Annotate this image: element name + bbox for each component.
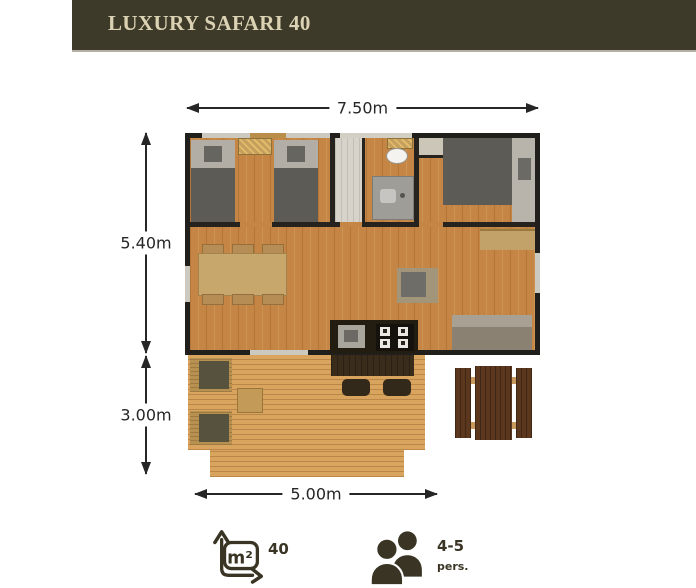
single-bed bbox=[274, 140, 318, 222]
burner-icon bbox=[398, 327, 408, 336]
window bbox=[286, 133, 330, 138]
page: LUXURY SAFARI 40 7.50m 5.40m 3.00m 5.00m bbox=[0, 0, 696, 588]
dimension-left-lower: 3.00m bbox=[138, 356, 154, 474]
stove bbox=[376, 324, 414, 351]
kitchen-sink bbox=[338, 325, 365, 348]
chair-seat bbox=[199, 414, 229, 442]
deck bbox=[188, 355, 425, 450]
people-icon bbox=[369, 527, 427, 587]
wash-basin bbox=[380, 189, 396, 203]
door-opening bbox=[419, 222, 443, 227]
door-opening bbox=[240, 222, 272, 227]
kitchen-counter bbox=[330, 320, 418, 353]
sofa-cushions bbox=[452, 315, 532, 327]
burner-icon bbox=[380, 339, 390, 348]
door-opening bbox=[340, 222, 362, 227]
dimension-bottom-label: 5.00m bbox=[282, 483, 349, 506]
shower-closet bbox=[335, 138, 362, 225]
nightstand bbox=[238, 138, 272, 155]
wardrobe-drawers bbox=[518, 158, 531, 180]
dimension-bottom: 5.00m bbox=[195, 486, 437, 502]
picnic-bench bbox=[455, 368, 471, 438]
arrowhead-up-icon bbox=[141, 132, 151, 145]
dining-chair bbox=[202, 294, 224, 305]
bar-stool bbox=[383, 379, 411, 396]
dimension-left-upper: 5.40m bbox=[138, 133, 154, 353]
desk bbox=[480, 229, 535, 250]
dimension-left-upper-label: 5.40m bbox=[112, 232, 179, 255]
tv bbox=[401, 272, 426, 297]
square-meters-label: m² bbox=[227, 549, 253, 569]
window bbox=[185, 266, 190, 302]
kitchen-island bbox=[331, 355, 414, 376]
arrowhead-right-icon bbox=[526, 103, 539, 113]
tv-cabinet bbox=[397, 268, 438, 303]
dimension-top: 7.50m bbox=[187, 100, 538, 116]
dimension-top-label: 7.50m bbox=[329, 97, 396, 120]
wardrobe bbox=[512, 138, 535, 225]
sofa bbox=[452, 315, 532, 350]
sink-vanity bbox=[372, 176, 414, 220]
burner-icon bbox=[380, 327, 390, 336]
capacity-value: 4-5 bbox=[437, 537, 464, 555]
arrowhead-down-icon bbox=[141, 462, 151, 475]
cabin-structure bbox=[185, 133, 540, 355]
arrowhead-left-icon bbox=[186, 103, 199, 113]
arrowhead-right-icon bbox=[425, 489, 438, 499]
interior-wall bbox=[362, 138, 365, 225]
window bbox=[535, 253, 540, 293]
picnic-tabletop bbox=[475, 366, 512, 440]
single-bed bbox=[191, 140, 235, 222]
arrowhead-left-icon bbox=[194, 489, 207, 499]
arrowhead-up-icon bbox=[141, 355, 151, 368]
deck-step bbox=[210, 450, 404, 477]
sink-bowl bbox=[344, 330, 358, 342]
dining-chair bbox=[262, 294, 284, 305]
dining-chair bbox=[232, 294, 254, 305]
dimension-left-lower-label: 3.00m bbox=[112, 404, 179, 427]
picnic-bench bbox=[516, 368, 532, 438]
dining-table bbox=[198, 253, 287, 296]
side-table bbox=[237, 388, 263, 413]
square-meters-icon: m² bbox=[212, 528, 268, 584]
page-title: LUXURY SAFARI 40 bbox=[108, 11, 696, 36]
arrowhead-down-icon bbox=[141, 341, 151, 354]
toilet bbox=[386, 148, 408, 164]
chair-seat bbox=[199, 361, 229, 389]
faucet-icon bbox=[400, 193, 405, 198]
deck-chair bbox=[190, 358, 232, 392]
picnic-table bbox=[455, 366, 532, 440]
bar-stool bbox=[342, 379, 370, 396]
header-bar: LUXURY SAFARI 40 bbox=[72, 0, 696, 52]
bed-pillow bbox=[204, 146, 222, 162]
area-value: 40 bbox=[268, 540, 289, 558]
burner-icon bbox=[398, 339, 408, 348]
bed-pillow bbox=[287, 146, 305, 162]
deck-chair bbox=[190, 411, 232, 445]
capacity-unit: pers. bbox=[437, 560, 469, 573]
shower bbox=[419, 138, 443, 158]
double-bed bbox=[443, 138, 512, 205]
